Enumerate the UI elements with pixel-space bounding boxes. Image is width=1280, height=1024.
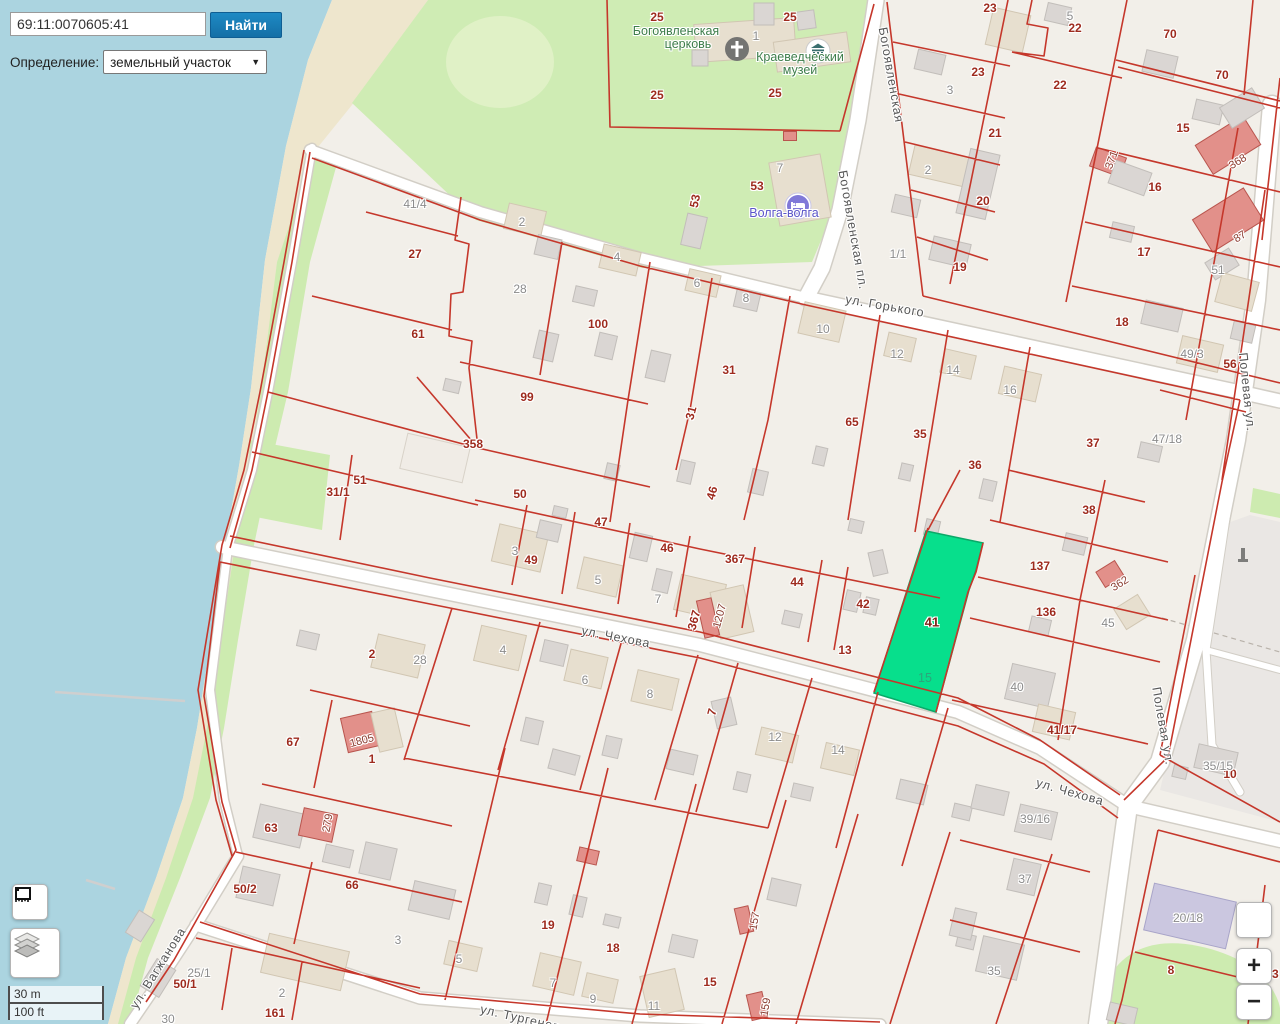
scale-metric: 30 m [10,986,102,1004]
layers-icon [11,929,43,961]
building [796,10,816,30]
ruler-icon [13,885,33,905]
zoom-in-button[interactable]: + [1236,948,1272,984]
search-input[interactable] [10,12,206,36]
cadastral-map-app: 2322702322702115201619171856252525255353… [0,0,1280,1024]
map-canvas[interactable] [0,0,1280,1024]
church-label-line2: церковь [665,37,712,51]
building [359,842,397,880]
scale-bar: 30 m 100 ft [8,986,104,1020]
park-clearing [446,16,554,108]
layers-button[interactable] [10,928,60,978]
filter-label: Определение: [10,55,99,70]
chevron-down-icon: ▼ [251,57,260,67]
filter-bar: Определение: земельный участок ▼ [10,50,267,74]
red-building [784,132,797,141]
map-extra-button[interactable] [1236,902,1272,938]
measure-tool-button[interactable] [12,884,48,920]
search-button[interactable]: Найти [210,12,282,38]
church-label-line1: Богоявленская [633,24,719,38]
selected-option: земельный участок [110,55,231,70]
museum-label-line1: Краеведческий [756,50,844,64]
building [985,7,1031,53]
building [754,3,774,25]
building [540,640,568,667]
object-type-select[interactable]: земельный участок ▼ [103,50,267,74]
zoom-out-button[interactable]: − [1236,984,1272,1020]
hotel-label: Волга-волга [749,206,818,220]
scale-imperial: 100 ft [10,1004,102,1020]
museum-label-line2: музей [783,63,818,77]
building [692,50,708,66]
search-bar: Найти [10,12,282,38]
building [848,519,864,534]
